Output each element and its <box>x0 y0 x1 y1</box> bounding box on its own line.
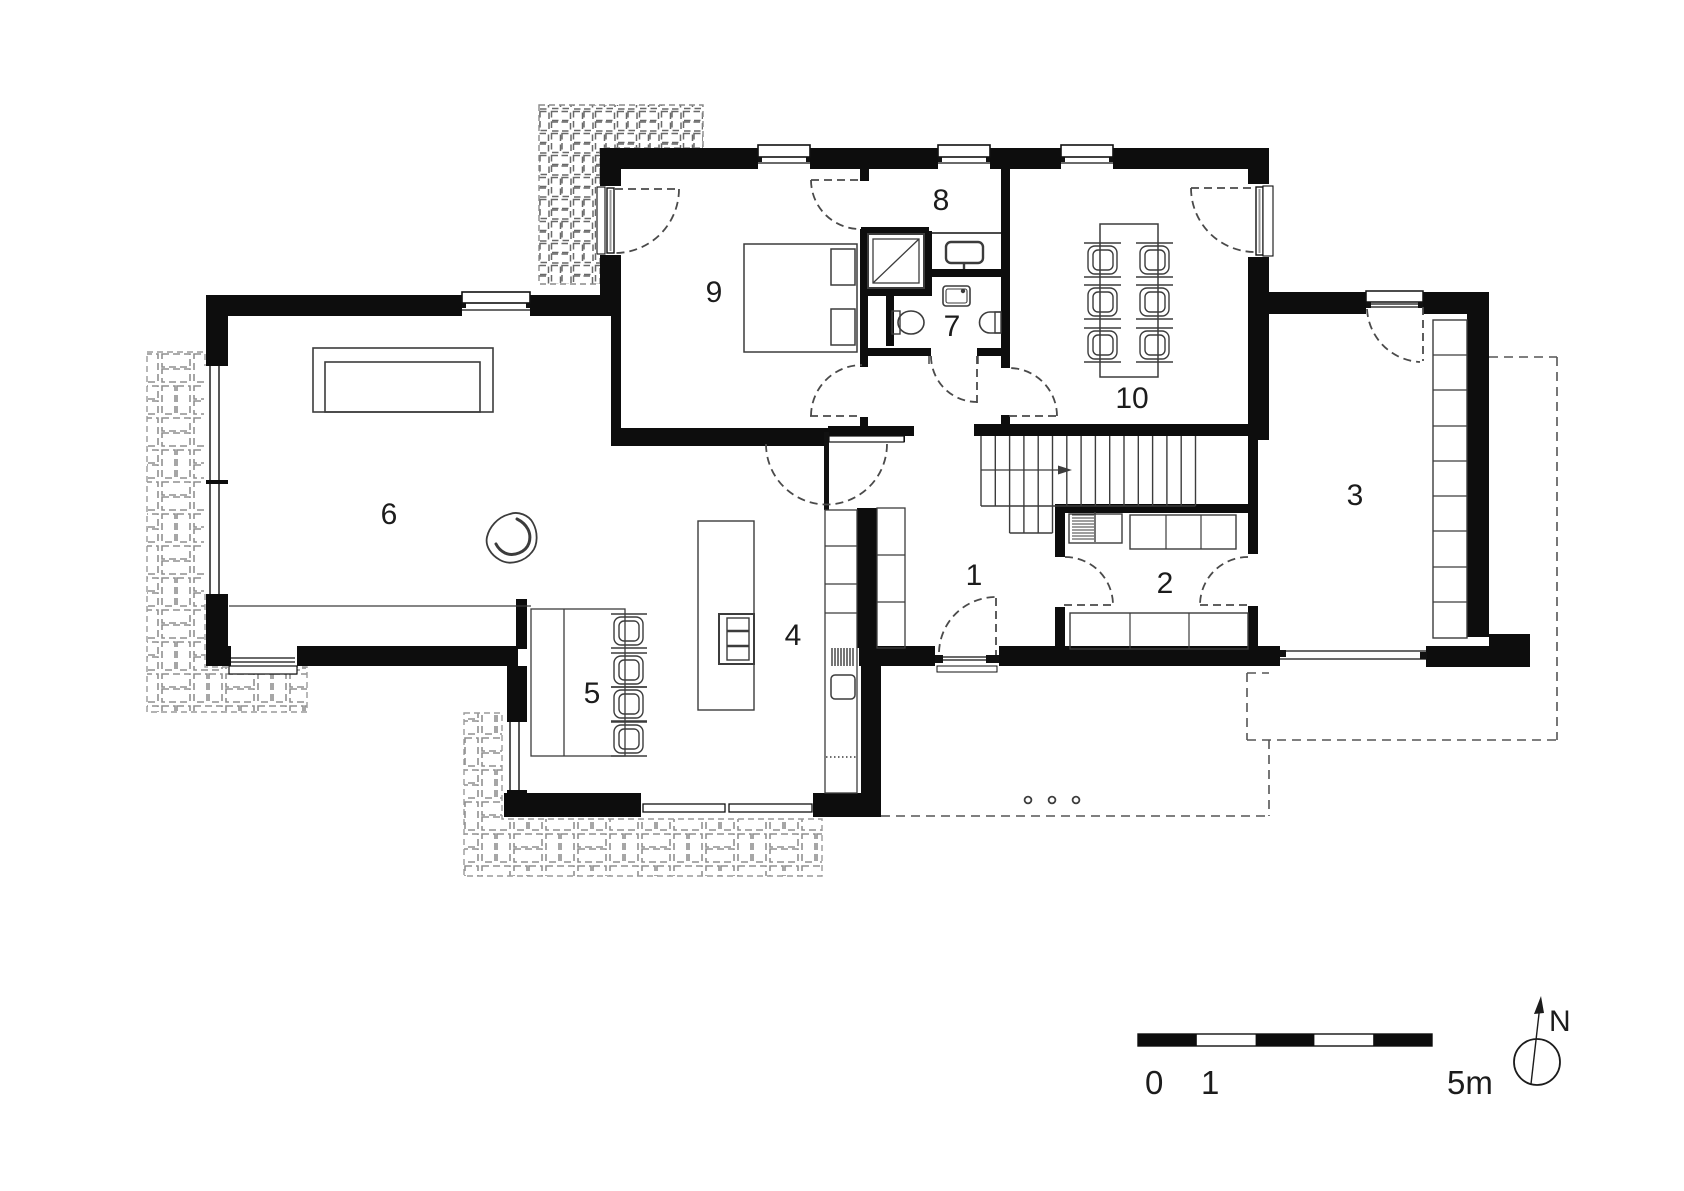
svg-text:0: 0 <box>1145 1064 1163 1101</box>
svg-text:6: 6 <box>381 498 398 531</box>
svg-text:1: 1 <box>966 559 983 592</box>
svg-text:9: 9 <box>706 276 723 309</box>
svg-text:5: 5 <box>584 677 601 710</box>
svg-text:N: N <box>1549 1005 1571 1038</box>
svg-text:8: 8 <box>933 184 950 217</box>
svg-text:4: 4 <box>785 619 802 652</box>
svg-text:1: 1 <box>1201 1064 1219 1101</box>
svg-text:2: 2 <box>1157 567 1174 600</box>
svg-text:10: 10 <box>1115 382 1148 415</box>
svg-text:5m: 5m <box>1447 1064 1493 1101</box>
svg-text:7: 7 <box>944 310 961 343</box>
svg-text:3: 3 <box>1347 479 1364 512</box>
